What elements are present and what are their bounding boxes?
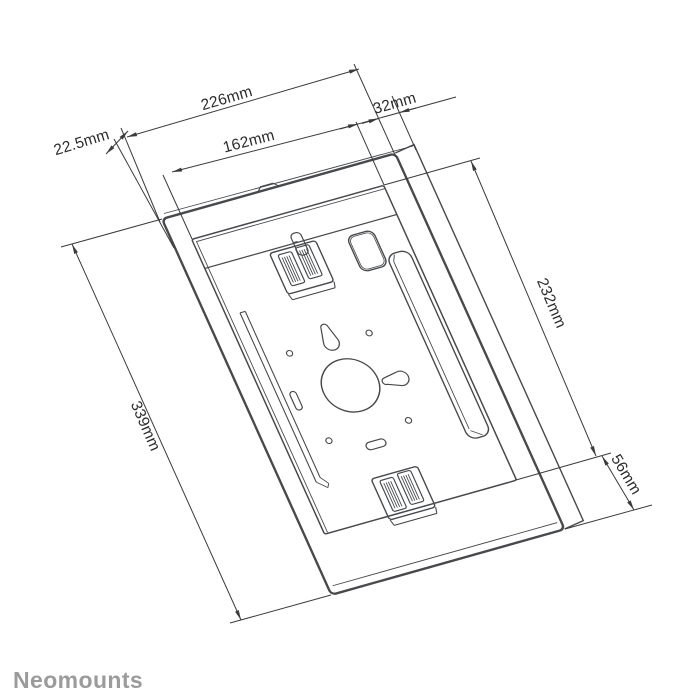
background bbox=[0, 0, 700, 700]
product-drawing-page: 226mm 32mm 162mm 22.5mm 232mm 339mm 56mm bbox=[0, 0, 700, 700]
neomounts-logo: Neomounts bbox=[13, 667, 143, 693]
technical-drawing: 226mm 32mm 162mm 22.5mm 232mm 339mm 56mm bbox=[0, 0, 700, 700]
